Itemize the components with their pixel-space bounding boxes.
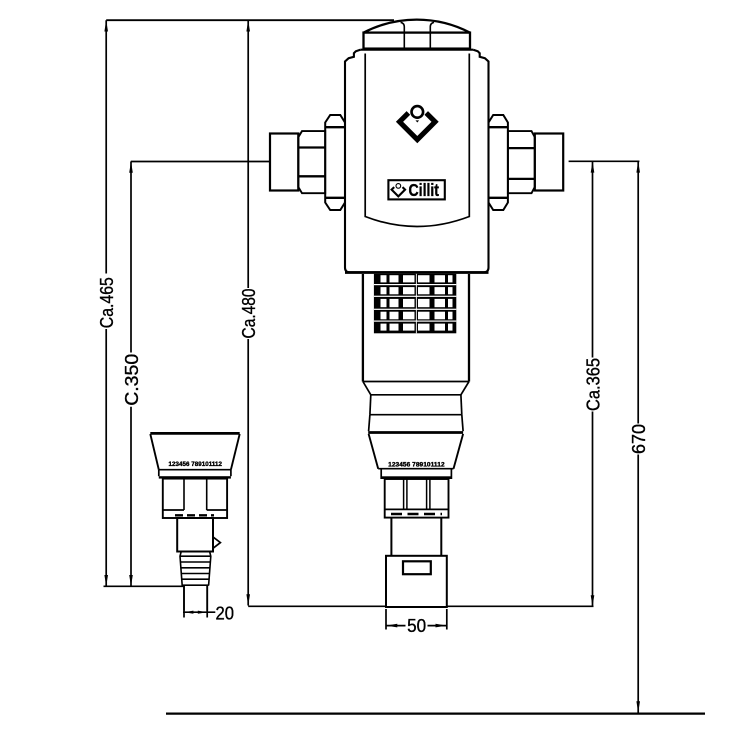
svg-text:Cillit: Cillit: [409, 180, 440, 200]
svg-text:Ca.465: Ca.465: [97, 277, 117, 328]
svg-text:123456 789101112: 123456 789101112: [169, 461, 223, 468]
svg-text:C.350: C.350: [122, 354, 142, 406]
svg-text:20: 20: [216, 603, 235, 623]
svg-text:50: 50: [407, 616, 426, 636]
svg-text:670: 670: [629, 424, 649, 454]
svg-text:Ca.480: Ca.480: [239, 289, 259, 339]
svg-text:123456 789101112: 123456 789101112: [388, 461, 445, 468]
svg-text:Ca.365: Ca.365: [584, 358, 604, 411]
